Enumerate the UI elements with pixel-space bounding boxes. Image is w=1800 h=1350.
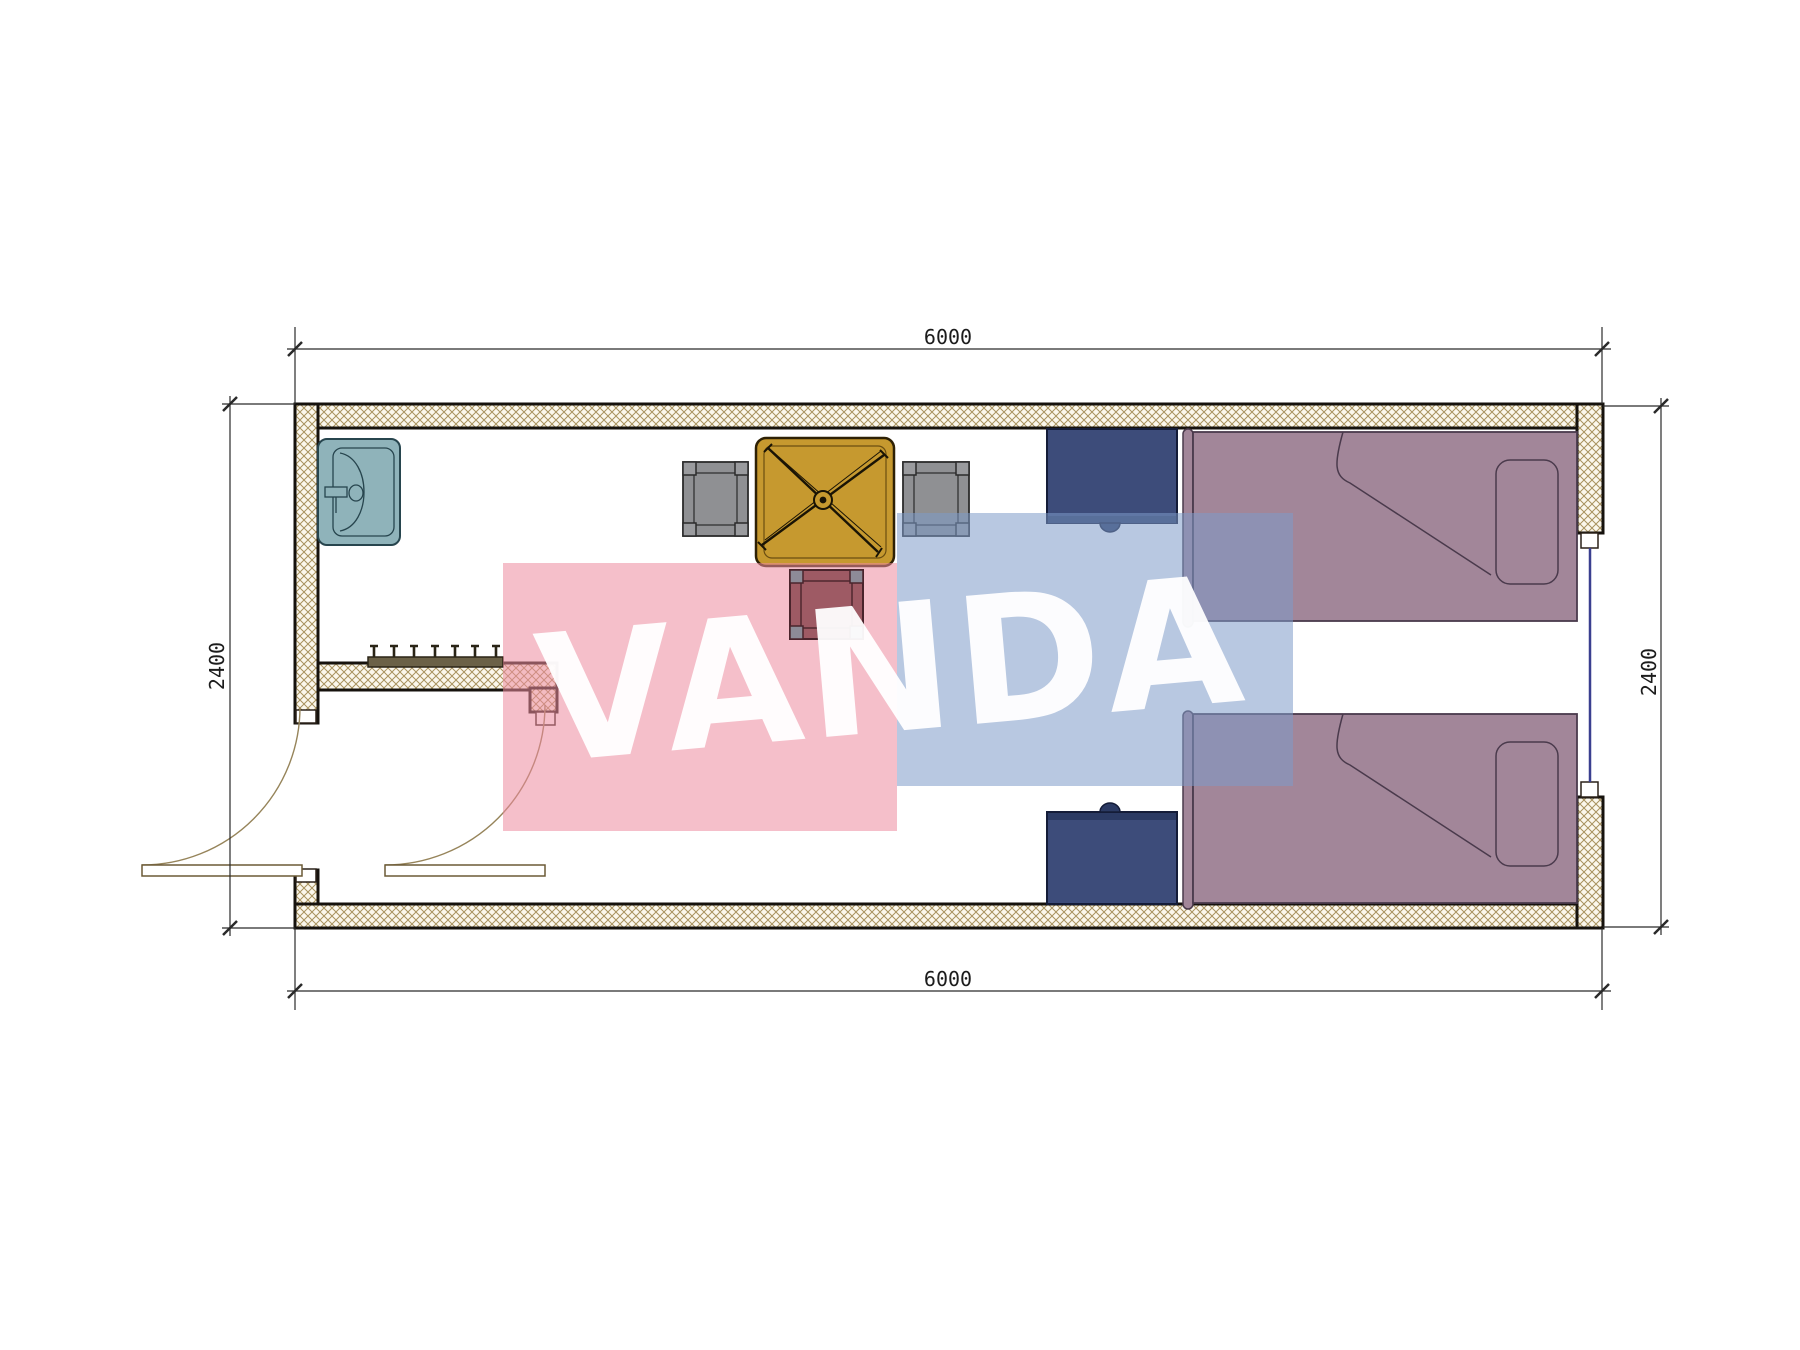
floor-plan-canvas: 6000 6000 2400 2400 VANDA bbox=[0, 0, 1800, 1350]
wall-right-upper bbox=[1577, 404, 1603, 533]
sink-icon bbox=[318, 439, 400, 545]
door-leaf-icon bbox=[385, 865, 545, 876]
window-jamb bbox=[1581, 782, 1598, 797]
dimension-label-top: 6000 bbox=[924, 325, 972, 349]
window-jamb bbox=[1581, 533, 1598, 548]
dimension-label-right: 2400 bbox=[1637, 648, 1661, 696]
door-swing-arc bbox=[142, 707, 300, 865]
dimension-label-left: 2400 bbox=[205, 642, 229, 690]
chair-icon bbox=[683, 462, 748, 536]
wall-left bbox=[295, 404, 318, 723]
nightstand-icon bbox=[1047, 803, 1177, 904]
table-icon bbox=[756, 438, 894, 566]
door-leaf-icon bbox=[142, 865, 302, 876]
coat-rack-icon bbox=[368, 645, 503, 667]
entry-doors bbox=[142, 705, 545, 876]
wall-top bbox=[295, 404, 1603, 428]
wall-right-lower bbox=[1577, 797, 1603, 928]
wall-bottom bbox=[295, 904, 1603, 928]
dimension-label-bottom: 6000 bbox=[924, 967, 972, 991]
floor-plan-drawing: 6000 6000 2400 2400 VANDA bbox=[0, 0, 1800, 1350]
